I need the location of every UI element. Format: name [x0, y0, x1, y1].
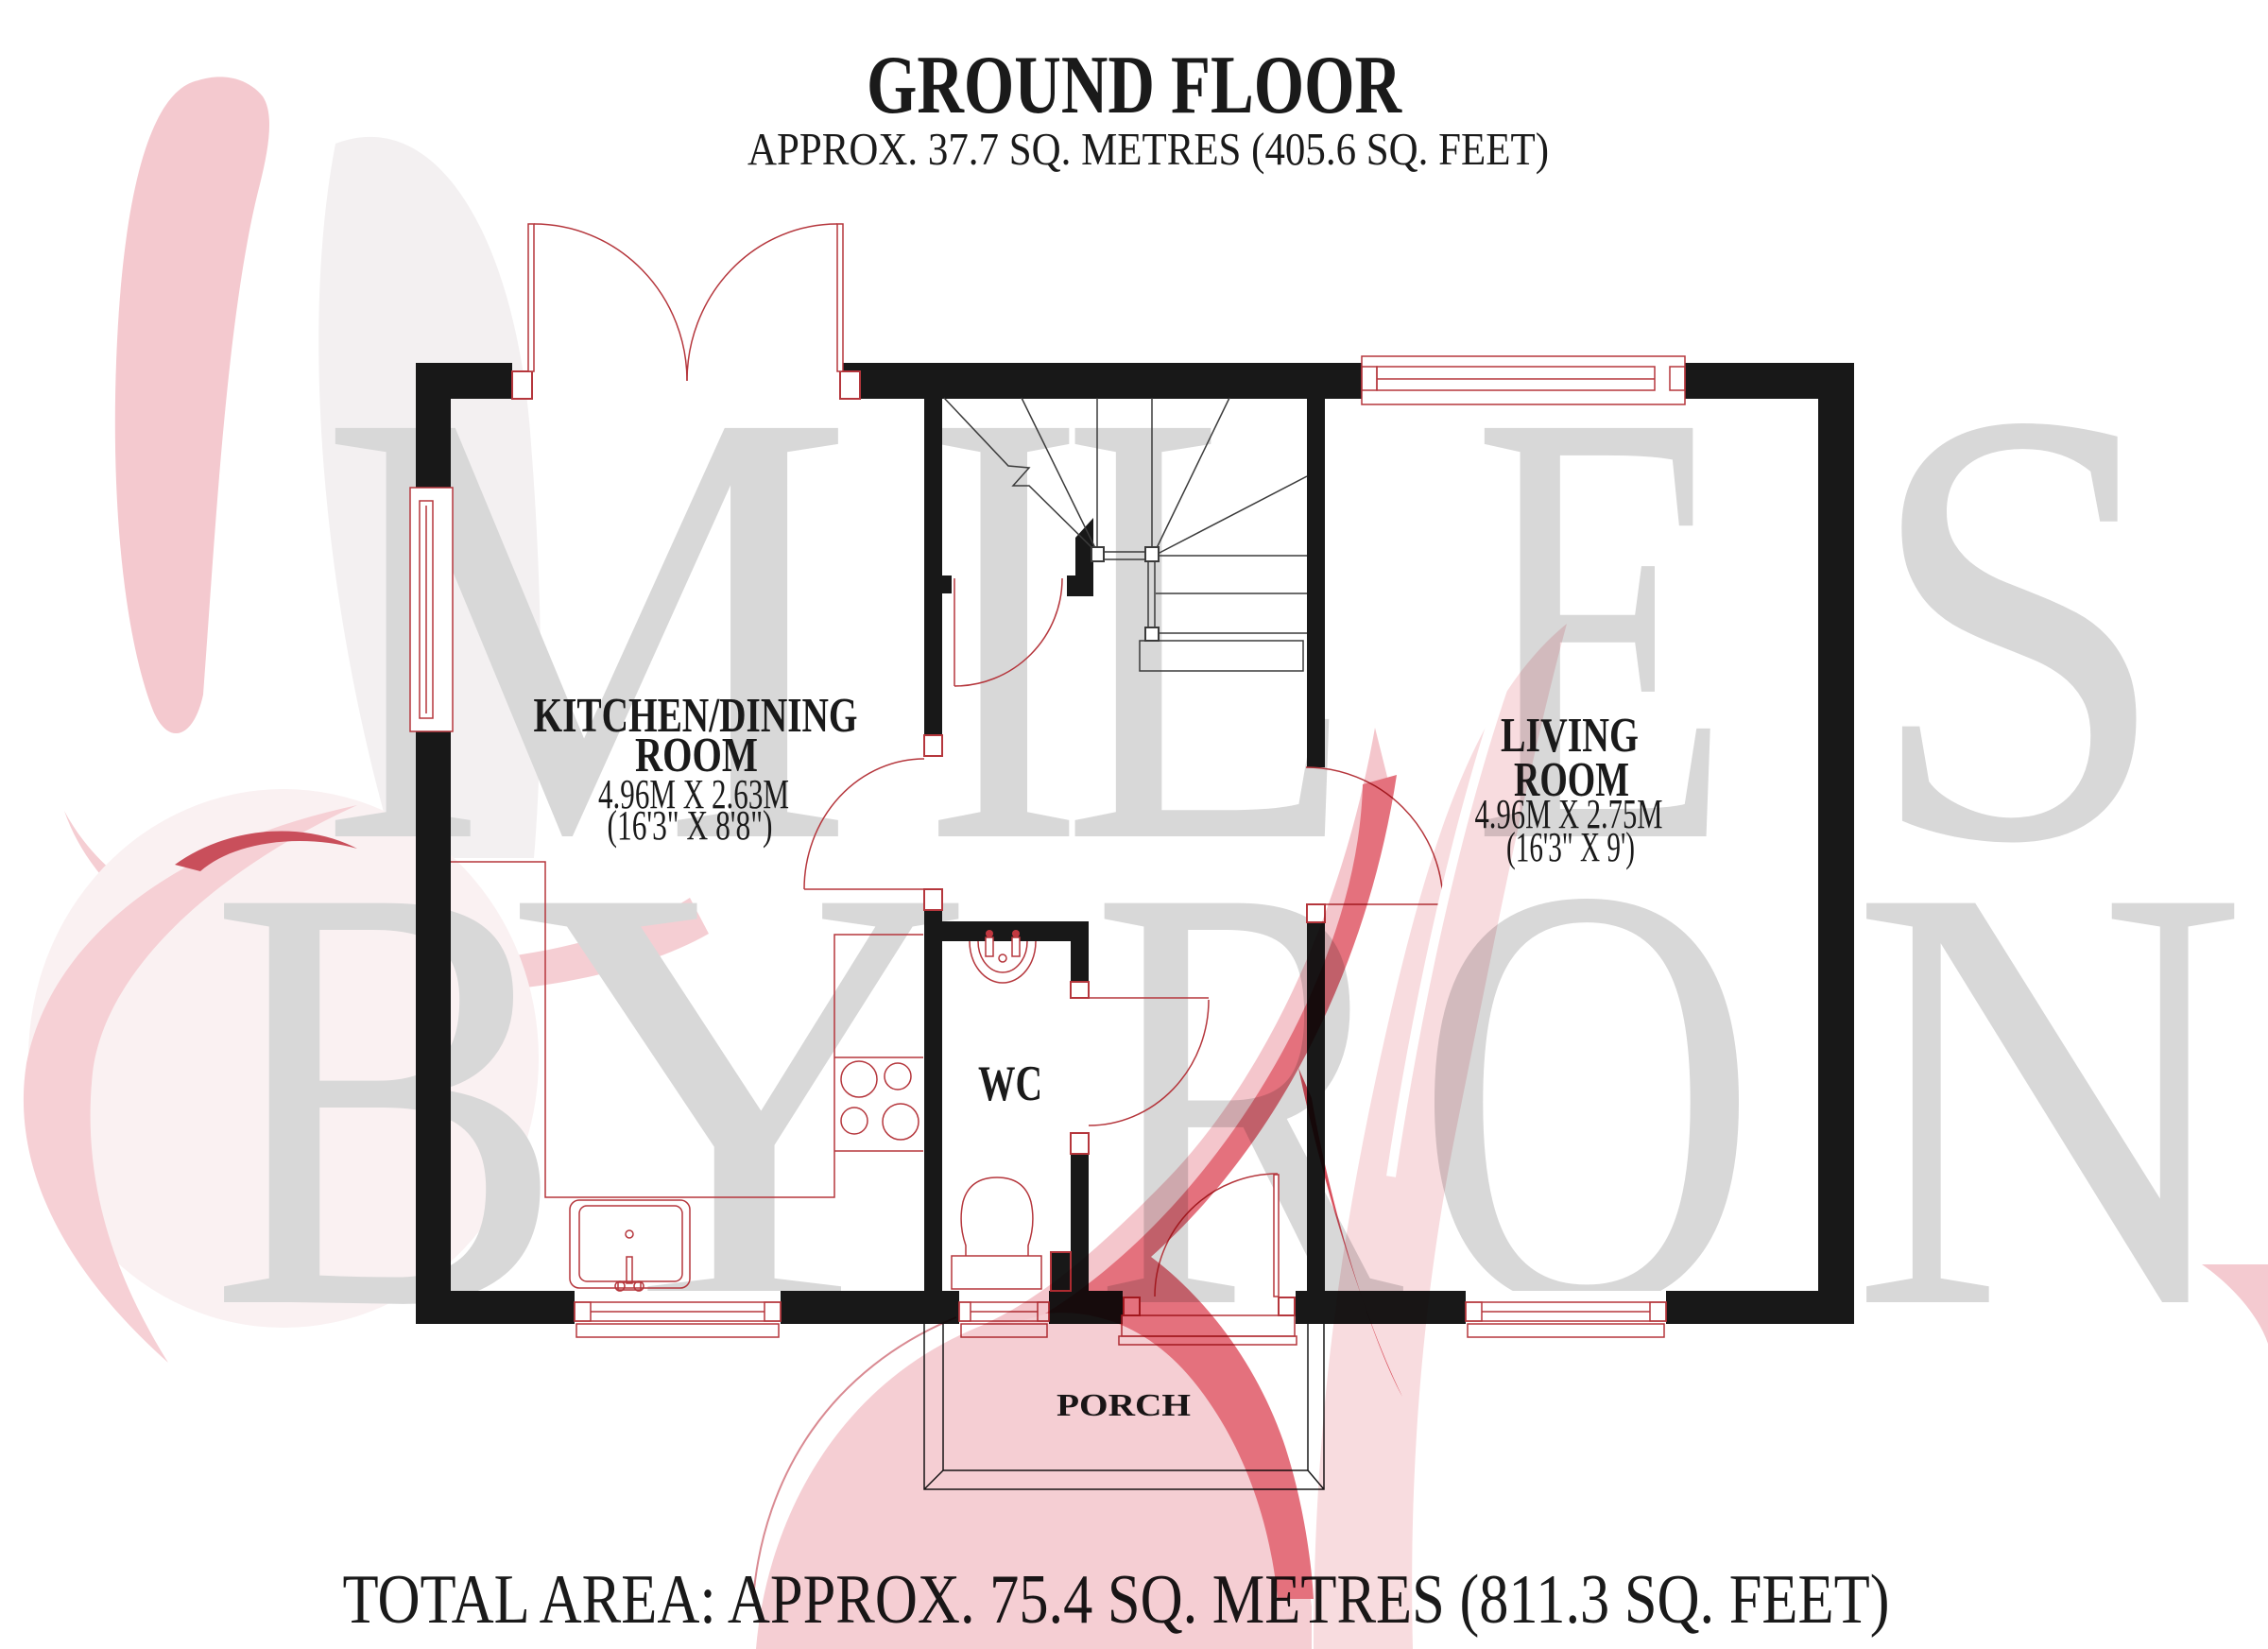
svg-text:APPROX. 37.7 SQ. METRES (405.6: APPROX. 37.7 SQ. METRES (405.6 SQ. FEET): [747, 123, 1549, 175]
svg-text:Y: Y: [512, 761, 974, 1435]
svg-text:(16'3" X 8'8"): (16'3" X 8'8"): [608, 802, 773, 849]
svg-text:WC: WC: [978, 1056, 1042, 1111]
svg-text:N: N: [1850, 759, 2246, 1434]
svg-text:(16'3" X 9'): (16'3" X 9'): [1506, 824, 1635, 870]
svg-text:GROUND FLOOR: GROUND FLOOR: [867, 40, 1402, 131]
